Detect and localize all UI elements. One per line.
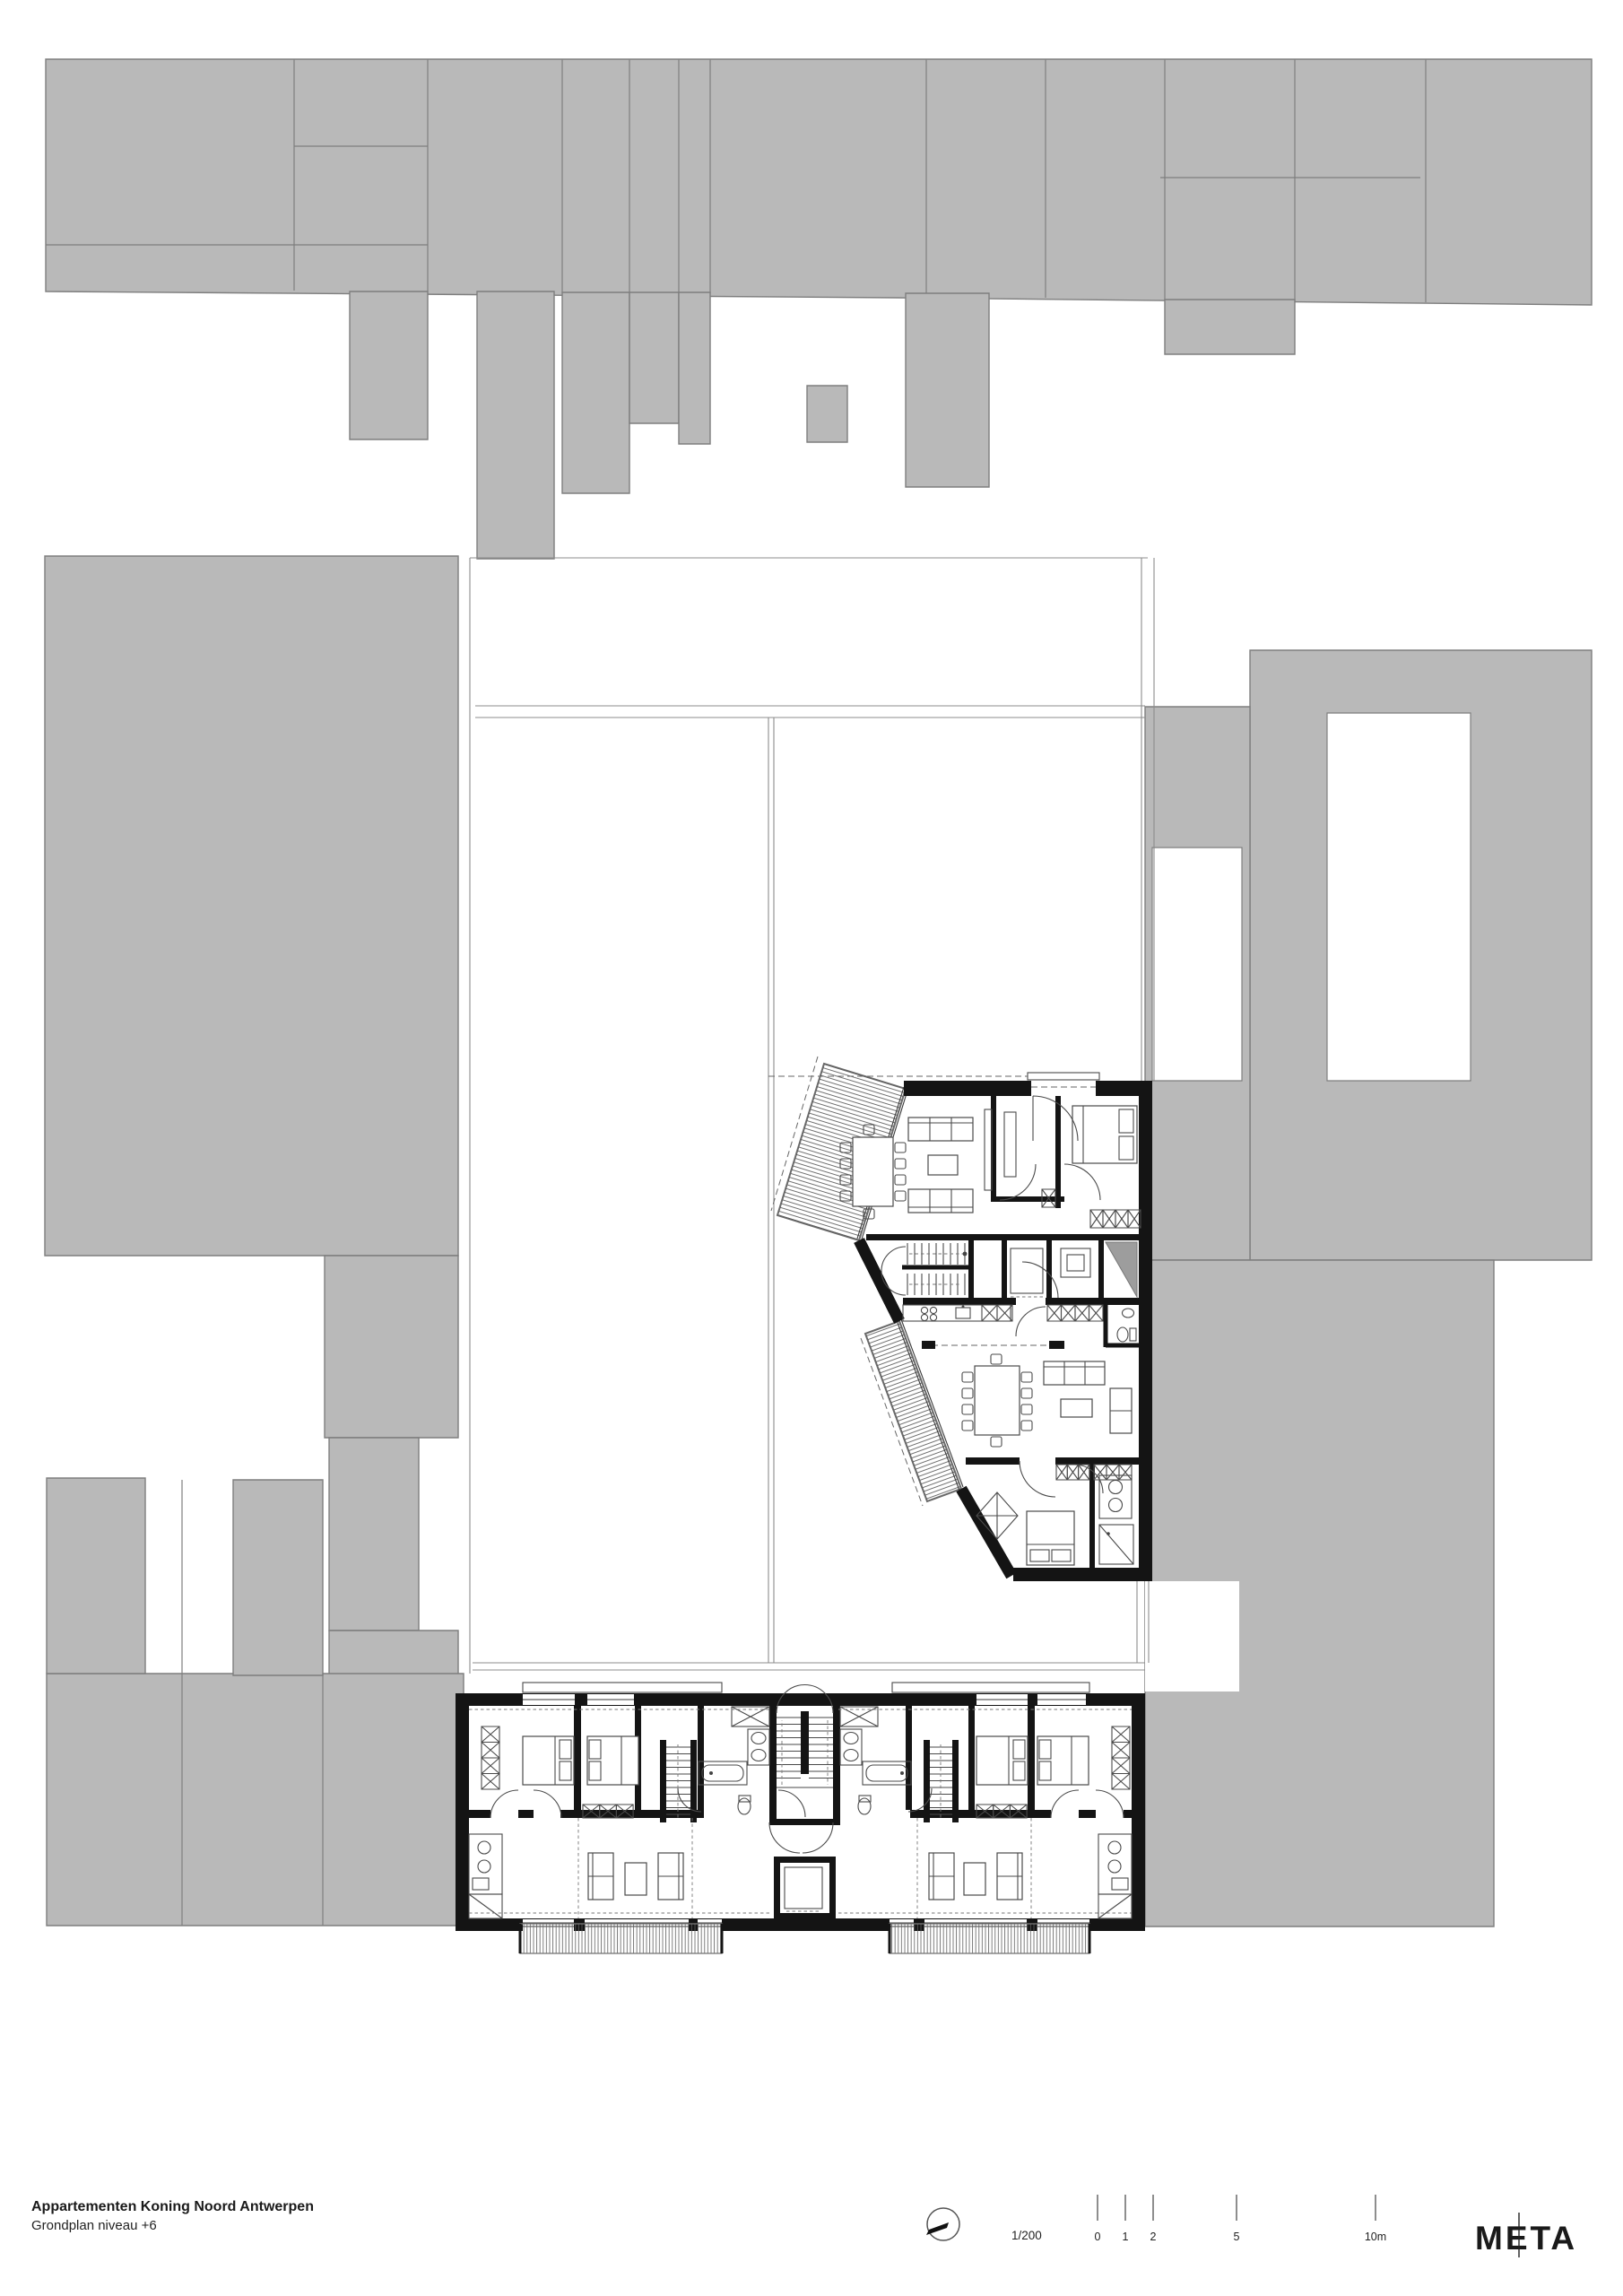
building-finger — [477, 291, 554, 559]
west-building-block — [325, 1256, 458, 1438]
apartment-unit-south — [456, 1683, 1145, 1953]
scale-tick-label: 10m — [1365, 2231, 1386, 2243]
drawing-sheet: 1/200 0 1 2 5 10m META Appartementen Kon… — [0, 0, 1623, 2296]
project-title: Appartementen Koning Noord Antwerpen — [31, 2197, 314, 2217]
building-finger — [1165, 300, 1295, 354]
north-building-band — [46, 59, 1592, 305]
west-building-block — [329, 1631, 458, 1675]
terrace-cutout — [1145, 1581, 1239, 1692]
building-finger — [906, 293, 989, 487]
scale-tick-label: 5 — [1234, 2231, 1240, 2243]
title-bar: 1/200 0 1 2 5 10m META — [926, 2195, 1577, 2257]
building-finger — [807, 386, 847, 442]
west-building-block — [47, 1478, 145, 1674]
north-arrow-icon — [926, 2208, 959, 2240]
balcony-south-right — [890, 1924, 1089, 1953]
building-finger — [629, 292, 679, 423]
southwest-building-band — [47, 1674, 464, 1926]
building-finger — [350, 291, 428, 439]
sheet-subtitle: Grondplan niveau +6 — [31, 2217, 314, 2235]
title-block: Appartementen Koning Noord Antwerpen Gro… — [31, 2197, 314, 2235]
balcony-slab — [1028, 1073, 1099, 1080]
scale-tick-label: 2 — [1150, 2231, 1157, 2243]
meta-logo: META — [1475, 2213, 1577, 2257]
balcony-slab — [523, 1683, 722, 1692]
floor-plan-drawing: 1/200 0 1 2 5 10m META — [0, 0, 1623, 2296]
scale-ratio-label: 1/200 — [1011, 2229, 1042, 2242]
apartment-unit-mid — [768, 1057, 1152, 1581]
meta-logo-text: META — [1475, 2220, 1577, 2257]
bed-ap1 — [1072, 1106, 1137, 1163]
east-roof-terrace — [1152, 848, 1242, 1081]
scale-tick-label: 1 — [1123, 2231, 1129, 2243]
building-finger — [679, 292, 710, 444]
west-building-block — [329, 1438, 419, 1631]
balcony-slab — [892, 1683, 1089, 1692]
east-roof-terrace — [1327, 713, 1471, 1081]
west-building-block — [45, 556, 458, 1256]
west-building-block — [233, 1480, 323, 1675]
scale-bar: 0 1 2 5 10m — [1095, 2195, 1387, 2243]
scale-tick-label: 0 — [1095, 2231, 1101, 2243]
surrounding-buildings — [45, 59, 1592, 1926]
bed-ap2 — [1027, 1511, 1074, 1565]
building-finger — [562, 292, 629, 493]
balcony-south-left — [520, 1924, 722, 1953]
